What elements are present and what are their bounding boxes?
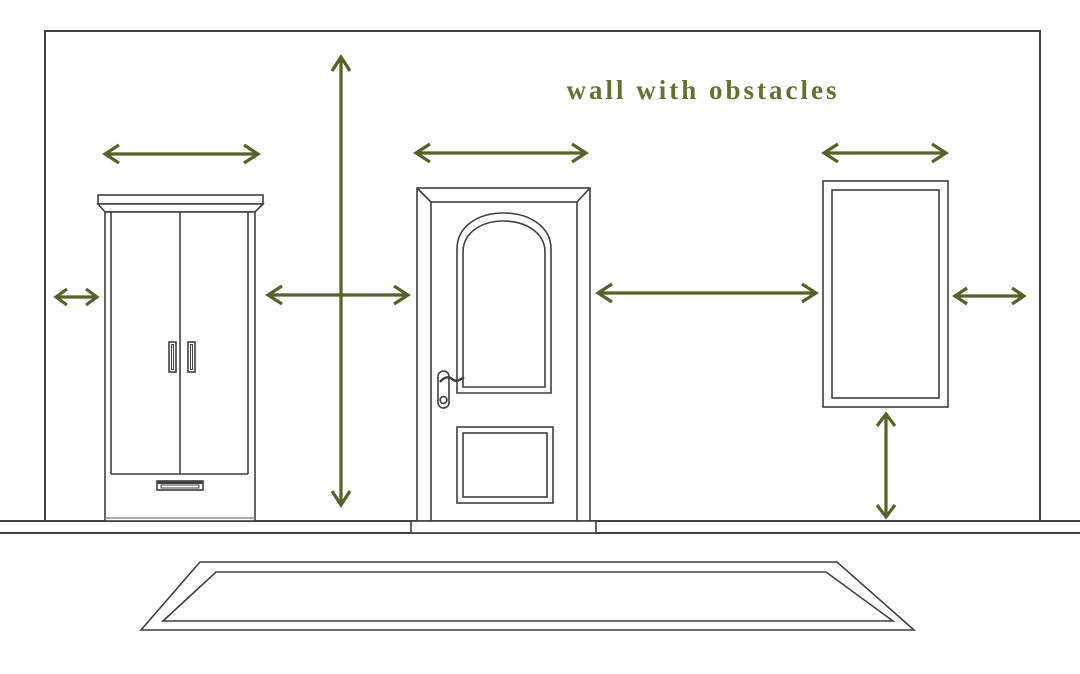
diagram-title: wall with obstacles bbox=[567, 75, 840, 105]
wardrobe-cornice bbox=[98, 195, 263, 204]
left-edge-gap-arrow bbox=[56, 289, 97, 305]
rug bbox=[141, 562, 914, 630]
door bbox=[411, 188, 596, 533]
rug-border-inner bbox=[163, 572, 893, 621]
mirror-width-arrow bbox=[824, 144, 946, 162]
door-threshold bbox=[411, 521, 596, 533]
wardrobe-door-gap-arrow bbox=[268, 286, 408, 304]
wardrobe bbox=[98, 195, 263, 521]
mirror bbox=[823, 181, 948, 407]
wall-height-arrow bbox=[332, 57, 350, 505]
door-frame-outer bbox=[417, 188, 590, 521]
wardrobe-width-arrow bbox=[105, 145, 258, 163]
right-edge-gap-arrow bbox=[955, 288, 1024, 304]
mirror-frame-outer bbox=[823, 181, 948, 407]
door-mirror-gap-arrow bbox=[598, 284, 816, 302]
wall-diagram: wall with obstacles bbox=[0, 0, 1080, 674]
mirror-floor-gap-arrow bbox=[877, 414, 895, 517]
door-width-arrow bbox=[416, 144, 586, 162]
wardrobe-cornice-base bbox=[98, 204, 263, 212]
